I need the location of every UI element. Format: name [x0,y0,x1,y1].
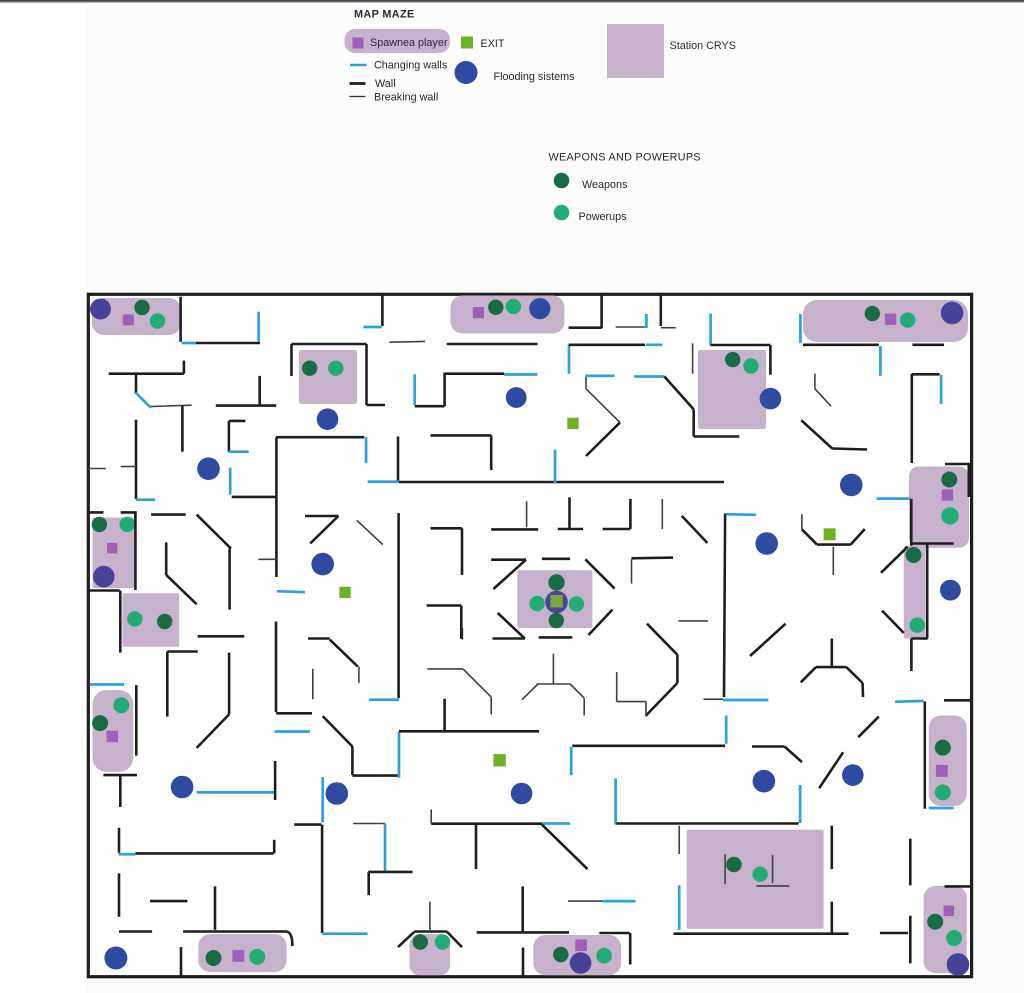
svg-text:EXIT: EXIT [481,38,505,50]
svg-text:Spawnea player: Spawnea player [370,37,448,49]
svg-text:Weapons: Weapons [582,179,628,191]
svg-text:Flooding sistems: Flooding sistems [494,71,576,83]
svg-text:Powerups: Powerups [579,211,628,223]
svg-text:Station CRYS: Station CRYS [670,40,736,52]
svg-text:Changing walls: Changing walls [374,60,448,72]
svg-text:Breaking wall: Breaking wall [374,92,438,104]
svg-text:Wall: Wall [375,78,396,90]
svg-text:MAP MAZE: MAP MAZE [354,9,415,21]
svg-text:WEAPONS AND POWERUPS: WEAPONS AND POWERUPS [549,152,701,164]
